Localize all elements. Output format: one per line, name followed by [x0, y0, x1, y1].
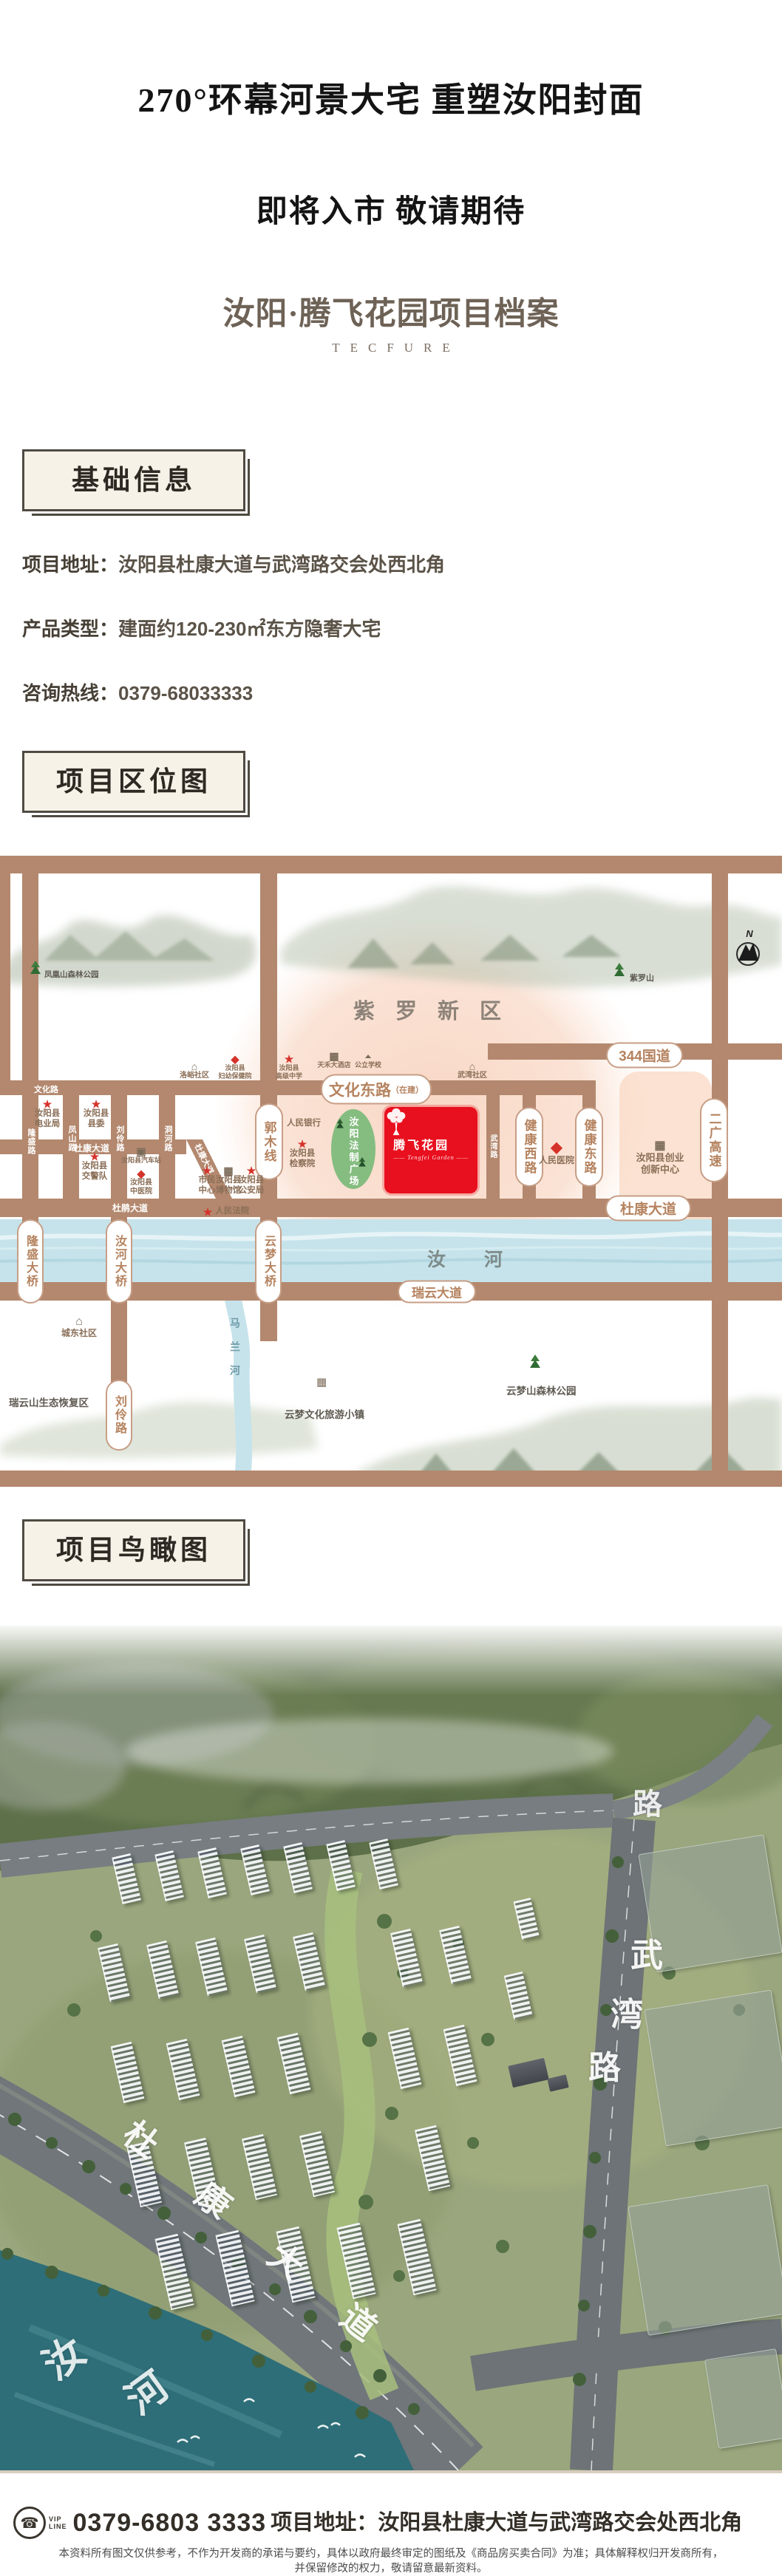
project-name-en: —— Tengfei Garden —— — [393, 1154, 469, 1162]
project-marker: 腾飞花园 —— Tengfei Garden —— — [384, 1107, 477, 1193]
map-poi: ★汝阳县公安局 — [239, 1165, 265, 1196]
building-icon: ▦ — [316, 1377, 327, 1388]
plaza-label: 汝阳法制广场 — [349, 1117, 358, 1188]
street-name: 洞河路 — [162, 1125, 174, 1152]
map-poi: ▣汝阳县汽车站 — [121, 1146, 161, 1165]
building-icon: ▦ — [654, 1140, 665, 1152]
river-label: 汝河 — [427, 1245, 541, 1272]
river-branch-label: 马兰河 — [228, 1318, 242, 1388]
star-icon: ★ — [298, 1139, 307, 1149]
road-label-pill: 344国道 — [606, 1043, 683, 1069]
star-icon: ★ — [203, 1207, 213, 1217]
svg-text:N: N — [746, 928, 753, 939]
project-name: 腾飞花园 — [393, 1139, 469, 1154]
map-poi: ◆人民医院 — [539, 1140, 574, 1165]
aerial-road-label: 路 — [588, 2052, 621, 2085]
street-name: 武湾路 — [487, 1134, 498, 1159]
street-name: 杜鹃大道 — [112, 1202, 148, 1214]
road-label-pill: 文化东路（在建） — [321, 1074, 432, 1105]
info-row-hotline: 咨询热线：0379-68033333 — [22, 681, 253, 706]
info-value: 建面约120-230㎡东方隐奢大宅 — [118, 618, 381, 640]
diamond-icon: ◆ — [231, 1054, 239, 1064]
park-label: 紫罗山 — [630, 972, 654, 984]
map-poi: ★人民法院 — [203, 1207, 250, 1217]
promo-page: { "hero": { "title": "270°环幕河景大宅 重塑汝阳封面"… — [0, 0, 782, 2574]
project-tree-icon — [384, 1107, 408, 1137]
info-value: 汝阳县杜康大道与武湾路交会处西北角 — [118, 553, 445, 576]
project-archive-title: 汝阳·腾飞花园项目档案 — [0, 296, 782, 334]
street-name: 凤山路 — [66, 1125, 78, 1152]
aerial-photo: 路 武 湾 路 杜 康 大 道 汝 河 — [0, 1626, 782, 2470]
star-icon: ★ — [247, 1165, 256, 1176]
info-label: 产品类型： — [22, 618, 118, 640]
footer-phone-number: 0379-6803 3333 — [73, 2510, 267, 2535]
map-poi: ▦天禾大酒店 — [317, 1051, 350, 1069]
star-icon: ★ — [92, 1099, 101, 1109]
map-poi: ⌂洛峪社区 — [180, 1061, 209, 1080]
map-poi: ★市民中心 — [199, 1165, 216, 1196]
road-label-pill: 汝河大桥 — [106, 1219, 132, 1304]
bus-icon: ▣ — [136, 1146, 146, 1156]
road-label-pill: 健康东路 — [575, 1107, 603, 1187]
info-row-address: 项目地址：汝阳县杜康大道与武湾路交会处西北角 — [22, 553, 445, 578]
disclaimer-line-2: 并保留修改的权力，敬请留意最新资料。 — [0, 2561, 782, 2576]
map-poi: ⌂城东社区 — [61, 1316, 97, 1338]
road-label-pill: 杜康大道 — [605, 1196, 691, 1221]
tree-icon — [31, 961, 40, 975]
map-poi: ◆汝阳县妇幼保健院 — [218, 1054, 251, 1080]
map-poi: ◆汝阳县中医院 — [130, 1168, 152, 1196]
section-header-basic-info: 基础信息 — [22, 449, 245, 511]
park-label: 瑞云山生态恢复区 — [9, 1394, 89, 1409]
brand-en: TECFURE — [0, 341, 782, 355]
diamond-icon: ◆ — [551, 1140, 562, 1155]
footer-address: 项目地址：汝阳县杜康大道与武湾路交会处西北角 — [271, 2512, 742, 2534]
road-label-pill: 隆盛大桥 — [17, 1219, 44, 1304]
section-title: 基础信息 — [72, 467, 196, 494]
location-map: 紫罗新区 凤凰山森林公园 紫罗山 云梦山森林公园 ▦ 云梦文化旅游小镇 瑞云山生… — [0, 824, 782, 1487]
map-poi: ▲公立学校 — [355, 1051, 381, 1069]
aerial-road-label: 武 — [630, 1940, 663, 1972]
map-poi: ★汝阳县交警队 — [82, 1151, 108, 1182]
park-label: 云梦文化旅游小镇 — [285, 1406, 364, 1421]
district-label: 紫罗新区 — [353, 994, 522, 1025]
road-label-pill: 云梦大桥 — [255, 1219, 282, 1304]
map-poi: ⌂武湾社区 — [458, 1061, 487, 1080]
page-title: 270°环幕河景大宅 重塑汝阳封面 — [0, 80, 782, 120]
map-poi: ▦汝阳县创业创新中心 — [636, 1140, 684, 1175]
tree-icon — [359, 1157, 365, 1168]
building-icon: ▦ — [329, 1051, 339, 1061]
info-row-product: 产品类型：建面约120-230㎡东方隐奢大宅 — [22, 617, 381, 642]
disclaimer-line-1: 本资料所有图文仅供参考，不作为开发商的承诺与要约，具体以政府最终审定的图纸及《商… — [0, 2546, 782, 2561]
road-label-pill: 瑞云大道 — [398, 1281, 476, 1304]
hotline-number: 0379-68033333 — [118, 682, 253, 704]
map-poi: ▦汝阳县博物馆 — [216, 1165, 242, 1196]
street-name: 隆盛路 — [25, 1128, 37, 1155]
vip-line-label: VIPLINE — [49, 2515, 67, 2531]
plaza-green-area: 汝阳法制广场 — [331, 1109, 375, 1189]
section-title: 项目区位图 — [56, 769, 211, 796]
star-icon: ★ — [43, 1099, 52, 1109]
house-icon: ⌂ — [469, 1061, 475, 1071]
section-header-aerial: 项目鸟瞰图 — [22, 1519, 245, 1581]
house-icon: ⌂ — [75, 1316, 83, 1328]
map-poi: ★汝阳县县委 — [84, 1099, 109, 1130]
map-poi: 人民银行 — [287, 1119, 321, 1129]
diamond-icon: ◆ — [137, 1168, 146, 1179]
section-header-location-map: 项目区位图 — [22, 751, 245, 813]
tree-icon — [531, 1355, 540, 1369]
park-label: 凤凰山森林公园 — [44, 969, 99, 980]
star-icon: ★ — [285, 1054, 294, 1064]
building-icon: ▦ — [223, 1165, 233, 1176]
aerial-road-label: 湾 — [611, 1999, 643, 2031]
map-poi: ★汝阳县电业局 — [35, 1099, 61, 1130]
school-icon: ▲ — [363, 1053, 373, 1059]
tree-icon — [615, 963, 624, 978]
mountains-bottom-left — [0, 1402, 318, 1458]
info-label: 咨询热线： — [22, 682, 118, 704]
park-label: 云梦山森林公园 — [506, 1383, 577, 1397]
map-poi: ★汝阳县检察院 — [290, 1139, 316, 1170]
road-label-pill: 刘伶路 — [106, 1380, 132, 1451]
photo-bottom-divider — [0, 2470, 782, 2473]
aerial-road-label: 路 — [633, 1790, 662, 1819]
star-icon: ★ — [203, 1165, 212, 1176]
map-poi: ★汝阳县高级中学 — [276, 1054, 302, 1080]
footer-contact-line: ☎ VIPLINE 0379-6803 3333 项目地址：汝阳县杜康大道与武湾… — [13, 2507, 742, 2539]
street-name: 文化路 — [34, 1083, 58, 1095]
house-icon: ⌂ — [191, 1061, 197, 1071]
tree-icon — [337, 1119, 343, 1129]
info-label: 项目地址： — [22, 553, 118, 576]
page-subtitle: 即将入市 敬请期待 — [0, 194, 782, 231]
road-label-pill: 二广高速 — [700, 1098, 728, 1182]
phone-icon: ☎ — [13, 2507, 46, 2539]
star-icon: ★ — [90, 1151, 100, 1162]
section-title: 项目鸟瞰图 — [56, 1537, 211, 1564]
